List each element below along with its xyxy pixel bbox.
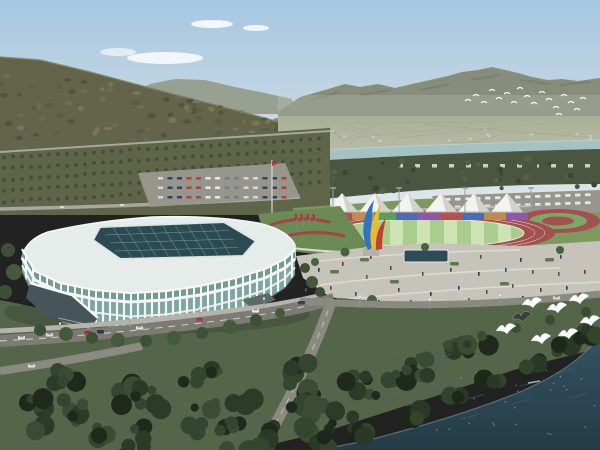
aerial-rendering	[0, 0, 600, 450]
cloud	[191, 20, 233, 28]
scene-svg	[0, 0, 600, 450]
court-center	[542, 217, 574, 226]
cloud	[100, 48, 136, 56]
cloud	[127, 52, 203, 64]
roof-skylight	[93, 222, 256, 259]
rainbow-stand	[330, 213, 528, 220]
fountain-pool	[404, 250, 448, 262]
cloud	[243, 25, 269, 31]
boat-wake	[528, 381, 540, 383]
